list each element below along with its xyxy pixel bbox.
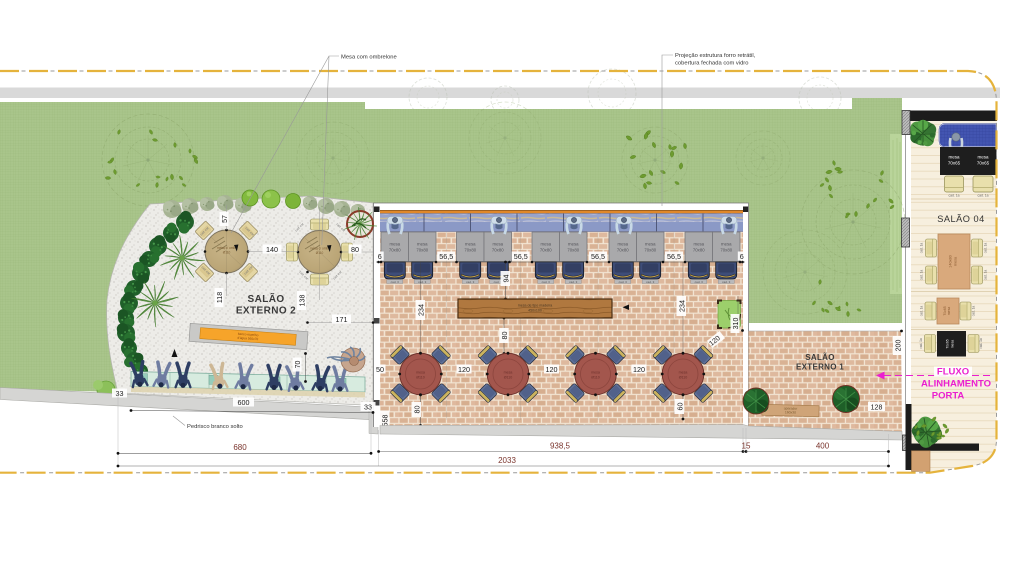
svg-text:mesa: mesa	[465, 242, 476, 247]
svg-text:Mesa com ombrelone: Mesa com ombrelone	[341, 55, 397, 61]
svg-text:Ø110: Ø110	[223, 251, 231, 255]
svg-text:cad. 1a: cad. 1a	[920, 270, 924, 281]
svg-text:mesa de tipo madeira: mesa de tipo madeira	[518, 304, 553, 308]
svg-text:234: 234	[416, 304, 425, 316]
svg-text:cad. 1a: cad. 1a	[977, 194, 988, 198]
svg-text:70x80: 70x80	[644, 248, 656, 253]
svg-text:aparador: aparador	[784, 406, 799, 410]
svg-text:PORTA: PORTA	[932, 391, 965, 402]
svg-text:680: 680	[233, 443, 247, 452]
svg-text:120: 120	[458, 365, 470, 374]
svg-text:2033: 2033	[498, 456, 516, 465]
svg-text:mesa: mesa	[948, 155, 960, 160]
svg-text:mesa: mesa	[947, 307, 951, 315]
svg-text:Ø110: Ø110	[679, 376, 688, 380]
svg-text:558: 558	[381, 415, 390, 427]
svg-text:Ø110: Ø110	[591, 376, 600, 380]
svg-text:cad. 3: cad. 3	[619, 280, 628, 284]
svg-text:EXTERNO 1: EXTERNO 1	[796, 363, 844, 372]
svg-text:70x80: 70x80	[540, 248, 552, 253]
svg-text:mesa: mesa	[504, 371, 513, 375]
svg-text:cad. 3: cad. 3	[391, 280, 400, 284]
svg-text:Ø110: Ø110	[416, 376, 425, 380]
svg-text:mesa: mesa	[977, 155, 989, 160]
svg-text:120: 120	[633, 365, 645, 374]
svg-text:70x65: 70x65	[943, 306, 947, 315]
svg-text:56,5: 56,5	[591, 252, 605, 261]
svg-text:cad. 1a: cad. 1a	[972, 306, 976, 317]
svg-text:15: 15	[742, 442, 751, 451]
svg-text:50: 50	[376, 365, 384, 374]
svg-text:cad. 1a: cad. 1a	[948, 194, 959, 198]
svg-text:mesa: mesa	[954, 256, 958, 266]
svg-text:mesa: mesa	[389, 242, 400, 247]
svg-text:6: 6	[378, 252, 382, 261]
svg-text:cad. 3: cad. 3	[466, 280, 475, 284]
svg-text:70x80: 70x80	[464, 248, 476, 253]
svg-text:cad. 1a: cad. 1a	[920, 243, 924, 254]
svg-text:70x80: 70x80	[389, 248, 401, 253]
svg-text:cad. 1a: cad. 1a	[920, 306, 924, 317]
svg-text:mesa: mesa	[591, 371, 600, 375]
svg-text:70x80: 70x80	[720, 248, 732, 253]
svg-text:128: 128	[871, 404, 883, 411]
svg-text:140x80: 140x80	[949, 255, 953, 267]
svg-text:6: 6	[740, 252, 744, 261]
svg-text:118: 118	[217, 292, 224, 303]
svg-text:mesa c/ omb.: mesa c/ omb.	[310, 247, 329, 251]
svg-text:938,5: 938,5	[550, 442, 571, 451]
svg-text:400: 400	[816, 442, 830, 451]
svg-text:Ø110: Ø110	[504, 376, 513, 380]
svg-text:SALÃO: SALÃO	[805, 353, 835, 362]
svg-text:57: 57	[222, 215, 229, 223]
svg-text:160x30: 160x30	[785, 410, 796, 414]
svg-text:Pedrisco branco solto: Pedrisco branco solto	[187, 424, 243, 430]
svg-text:56,5: 56,5	[439, 252, 453, 261]
svg-text:600: 600	[238, 398, 250, 407]
svg-text:cad. 3: cad. 3	[695, 280, 704, 284]
svg-text:mesa: mesa	[568, 242, 579, 247]
svg-text:cad. 3: cad. 3	[646, 280, 655, 284]
svg-text:138: 138	[299, 295, 306, 307]
svg-text:70x80: 70x80	[492, 248, 504, 253]
svg-text:cad. 3: cad. 3	[542, 280, 551, 284]
svg-text:mesa: mesa	[417, 242, 428, 247]
svg-text:cad. 3: cad. 3	[569, 280, 578, 284]
svg-text:450x100: 450x100	[528, 309, 542, 313]
svg-text:SALÃO: SALÃO	[248, 292, 285, 305]
svg-text:56,5: 56,5	[514, 252, 528, 261]
svg-text:70x80: 70x80	[567, 248, 579, 253]
svg-text:80: 80	[500, 332, 509, 340]
svg-text:60: 60	[675, 403, 684, 411]
svg-text:mesa: mesa	[679, 371, 688, 375]
svg-text:cad. 3: cad. 3	[418, 280, 427, 284]
svg-text:cad. 3: cad. 3	[722, 280, 731, 284]
svg-text:EXTERNO 2: EXTERNO 2	[236, 306, 296, 317]
svg-text:80: 80	[412, 406, 421, 414]
svg-text:cad. 1a: cad. 1a	[979, 338, 983, 349]
svg-text:mesa: mesa	[951, 340, 955, 348]
svg-text:cad. 1a: cad. 1a	[984, 270, 988, 281]
svg-text:120: 120	[546, 365, 558, 374]
svg-text:cad. 1a: cad. 1a	[984, 243, 988, 254]
svg-text:mesa c/ omb.: mesa c/ omb.	[217, 246, 236, 250]
svg-text:cobertura fechada com vidro: cobertura fechada com vidro	[675, 61, 748, 67]
svg-text:ALINHAMENTO: ALINHAMENTO	[921, 379, 991, 390]
svg-text:70x65: 70x65	[948, 161, 961, 166]
svg-text:56,5: 56,5	[667, 252, 681, 261]
svg-text:171: 171	[336, 315, 348, 324]
svg-text:mesa: mesa	[416, 371, 425, 375]
svg-text:mesa: mesa	[721, 242, 732, 247]
svg-text:mesa: mesa	[540, 242, 551, 247]
svg-text:Ø110: Ø110	[316, 251, 324, 255]
svg-text:SALÃO 04: SALÃO 04	[937, 214, 984, 224]
svg-text:FLUXO: FLUXO	[937, 367, 969, 378]
svg-text:94: 94	[501, 275, 510, 283]
svg-text:70x65: 70x65	[946, 339, 950, 348]
svg-text:140: 140	[266, 245, 278, 254]
svg-text:200: 200	[895, 340, 902, 352]
svg-text:80: 80	[351, 245, 359, 254]
svg-text:70x80: 70x80	[416, 248, 428, 253]
svg-text:mesa: mesa	[617, 242, 628, 247]
svg-text:70x80: 70x80	[617, 248, 629, 253]
svg-text:mesa: mesa	[492, 242, 503, 247]
svg-text:mesa: mesa	[645, 242, 656, 247]
svg-text:70x65: 70x65	[977, 161, 990, 166]
svg-text:310: 310	[733, 318, 740, 330]
svg-text:mesa: mesa	[693, 242, 704, 247]
svg-text:234: 234	[677, 300, 686, 312]
svg-text:Projeção estrutura forro retrá: Projeção estrutura forro retrátil,	[675, 53, 756, 59]
svg-text:33: 33	[116, 389, 124, 398]
svg-text:70: 70	[295, 361, 302, 369]
svg-text:cad. 1a: cad. 1a	[919, 338, 923, 349]
svg-text:70x80: 70x80	[693, 248, 705, 253]
